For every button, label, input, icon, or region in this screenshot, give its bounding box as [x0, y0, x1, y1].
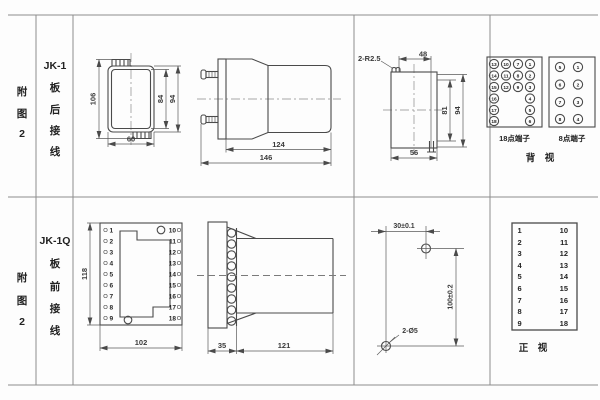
- dim-106-label: 106: [89, 93, 98, 106]
- terminal-pin-number: 7: [559, 100, 562, 106]
- model-wiring-label-bottom: JK-1Q 板 前 接 线: [40, 235, 71, 337]
- table-cell: 17: [560, 307, 568, 316]
- dim-100-label: 100±0.2: [448, 284, 455, 309]
- table-cell: 12: [560, 249, 568, 258]
- wiring-label-char: 接: [50, 124, 61, 137]
- relay-side-view-drawing: 124 146: [197, 59, 341, 166]
- terminal-pin-number: 6: [110, 282, 114, 289]
- figure-label-char: 附: [17, 271, 28, 284]
- plate-right-terminals: 10 11 12 13 14 15 16 17 18: [169, 227, 181, 322]
- front-view-label: 正 视: [519, 342, 548, 354]
- terminal-pin-number: 4: [529, 96, 532, 102]
- terminal-pin-number: 13: [169, 260, 177, 267]
- terminal-pin-number: 10: [169, 227, 177, 234]
- table-cell: 2: [518, 238, 522, 247]
- table-cell: 8: [518, 307, 522, 316]
- drill-plan-drawing: 30±0.1 100±0.2 2-Ø5: [371, 223, 464, 355]
- terminal-pin-number: 12: [169, 249, 177, 256]
- terminal-screw-row: [227, 228, 236, 326]
- table-cell: 7: [518, 296, 522, 305]
- table-cell: 9: [518, 319, 522, 328]
- table-cell: 4: [518, 261, 523, 270]
- wiring-label-char: 板: [50, 257, 61, 270]
- terminal-pin-number: 4: [110, 260, 114, 267]
- terminal-8-block: 5 1 6 2 7 3 8 4 8点端子: [549, 57, 595, 143]
- front-wiring-side-view-drawing: 35 121: [197, 222, 346, 354]
- wiring-label-char: 后: [50, 103, 61, 116]
- terminal-pin-number: 5: [529, 108, 532, 114]
- dim-84-label: 84: [156, 94, 165, 103]
- terminal-pin-number: 15: [491, 85, 497, 91]
- dim-48-label: 48: [419, 50, 427, 59]
- table-cell: 15: [560, 284, 568, 293]
- drawing-sheet: 附 图 2 JK-1 板 后 接 线 106 84 94 60: [0, 0, 600, 400]
- figure-label-char: 附: [17, 85, 28, 98]
- holes-note-label: 2-Ø5: [402, 328, 418, 335]
- model-wiring-label-top: JK-1 板 后 接 线: [44, 60, 67, 158]
- terminal-pin-number: 18: [491, 119, 497, 125]
- wiring-label-char: 前: [50, 280, 61, 293]
- terminal-pin-number: 6: [529, 119, 532, 125]
- terminal-pin-number: 16: [491, 96, 497, 102]
- panel-cutout-drawing: 2-R2.5 48 81 94 56: [358, 50, 467, 162]
- dim-118-label: 118: [80, 268, 89, 280]
- terminal-pin-number: 11: [503, 73, 508, 79]
- terminal-pin-number: 2: [529, 73, 532, 79]
- table-cell: 13: [560, 261, 568, 270]
- terminal-pin-number: 17: [169, 304, 177, 311]
- terminal-pin-number: 1: [577, 65, 580, 71]
- model-label: JK-1Q: [40, 235, 71, 247]
- terminal-pin-number: 7: [517, 62, 520, 68]
- terminal-pin-number: 1: [110, 227, 114, 234]
- terminal-pin-number: 11: [169, 238, 176, 245]
- terminal-pin-number: 18: [169, 315, 177, 322]
- figure-label-char: 图: [17, 108, 28, 120]
- terminal-pin-number: 3: [529, 85, 532, 91]
- figure-label-bottom: 附 图 2: [17, 271, 28, 328]
- dim-35-label: 35: [218, 341, 226, 350]
- plate-front-drawing: 1 2 3 4 5 6 7 8 9 10 11 12 13 14 15 16 1…: [80, 223, 182, 351]
- dim-94-cutout-label: 94: [453, 106, 462, 115]
- terminal-table: 1 2 3 4 5 6 7 8 9 10 11 12 13 14 15 16 1…: [512, 223, 577, 354]
- terminal-pin-number: 15: [169, 282, 177, 289]
- wiring-label-char: 线: [50, 145, 61, 158]
- table-cell: 14: [560, 272, 569, 281]
- terminal-pin-number: 5: [110, 271, 114, 278]
- table-cell: 11: [560, 238, 568, 247]
- terminal-pin-number: 5: [559, 65, 562, 71]
- table-grid: [8, 15, 598, 385]
- terminal-pin-number: 3: [110, 249, 114, 256]
- terminal-8-label: 8点端子: [559, 133, 586, 143]
- terminal-pin-number: 2: [110, 238, 114, 245]
- wiring-label-char: 板: [50, 81, 61, 94]
- terminal-pin-number: 7: [110, 293, 114, 300]
- terminal-pin-number: 1: [529, 62, 532, 68]
- wiring-label-char: 线: [50, 324, 61, 337]
- terminal-pin-number: 2: [577, 82, 580, 88]
- dim-94-label: 94: [168, 94, 177, 103]
- terminal-pin-number: 3: [577, 100, 580, 106]
- terminal-pin-number: 13: [491, 62, 497, 68]
- figure-label-char: 2: [19, 316, 25, 328]
- terminal-pin-number: 6: [559, 82, 562, 88]
- table-cell: 3: [518, 249, 522, 258]
- dim-102-label: 102: [135, 338, 148, 347]
- wiring-label-char: 接: [50, 302, 61, 315]
- terminal-pin-number: 14: [491, 73, 497, 79]
- table-cell: 16: [560, 296, 568, 305]
- table-cell: 10: [560, 226, 568, 235]
- terminal-pin-number: 8: [517, 73, 520, 79]
- dim-56-label: 56: [410, 148, 418, 157]
- drawing-canvas: 附 图 2 JK-1 板 后 接 线 106 84 94 60: [0, 0, 600, 400]
- terminal-pin-number: 10: [503, 62, 509, 68]
- terminal-table-left-column: 1 2 3 4 5 6 7 8 9: [518, 226, 523, 328]
- dim-121-label: 121: [278, 341, 291, 350]
- terminal-pin-number: 4: [577, 117, 580, 123]
- table-cell: 1: [518, 226, 522, 235]
- dim-60-label: 60: [127, 135, 135, 144]
- terminal-pin-number: 12: [503, 85, 509, 91]
- table-cell: 6: [518, 284, 522, 293]
- dim-30-label: 30±0.1: [393, 223, 414, 230]
- terminal-pin-number: 9: [110, 315, 114, 322]
- terminal-18-label: 18点端子: [499, 133, 530, 143]
- terminal-pin-number: 14: [169, 271, 177, 278]
- table-cell: 18: [560, 319, 568, 328]
- dim-146-label: 146: [260, 153, 273, 162]
- radius-note-label: 2-R2.5: [358, 54, 381, 63]
- terminal-pin-number: 16: [169, 293, 177, 300]
- rear-view-label: 背 视: [526, 152, 555, 164]
- figure-label-char: 图: [17, 295, 28, 307]
- terminal-table-right-column: 10 11 12 13 14 15 16 17 18: [560, 226, 569, 328]
- terminal-pin-number: 8: [559, 117, 562, 123]
- model-label: JK-1: [44, 60, 67, 72]
- relay-front-view-drawing: 106 84 94 60: [89, 53, 182, 147]
- terminal-18-block: 13 10 7 1 14 11 8 2 15 12 9 3 16 4 17 5 …: [487, 57, 542, 143]
- figure-label-char: 2: [19, 128, 25, 140]
- terminal-pin-number: 8: [110, 304, 114, 311]
- terminal-pin-number: 17: [491, 108, 497, 114]
- dim-81-label: 81: [440, 106, 449, 114]
- dim-124-label: 124: [272, 140, 285, 149]
- figure-label-top: 附 图 2: [17, 85, 28, 140]
- table-cell: 5: [518, 272, 522, 281]
- terminal-pin-number: 9: [517, 85, 520, 91]
- plate-left-terminals: 1 2 3 4 5 6 7 8 9: [104, 227, 114, 322]
